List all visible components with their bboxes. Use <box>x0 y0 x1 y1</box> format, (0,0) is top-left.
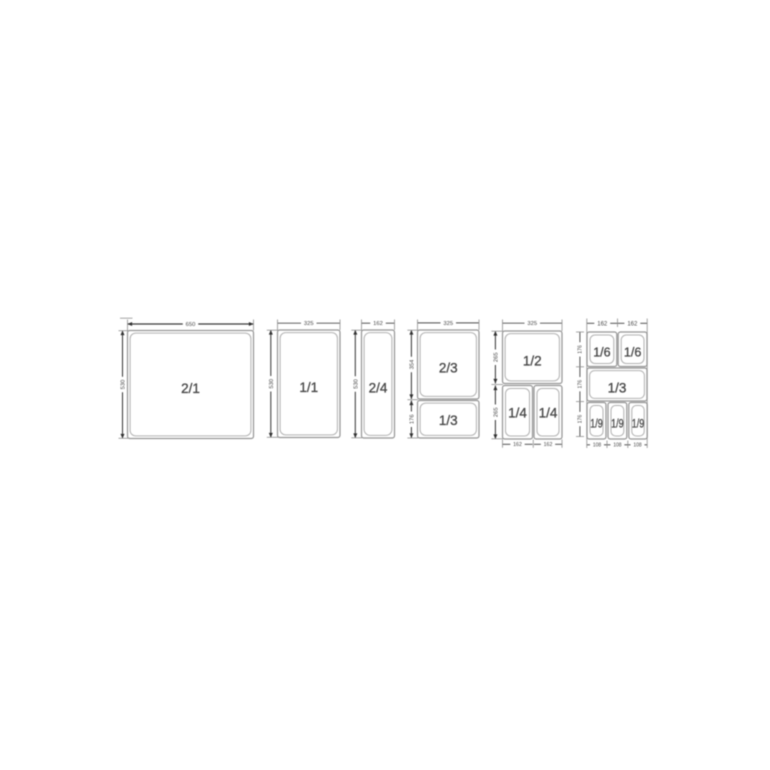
svg-text:1/9: 1/9 <box>611 418 624 430</box>
svg-text:162: 162 <box>597 321 608 327</box>
svg-text:1/6: 1/6 <box>593 345 610 359</box>
svg-text:162: 162 <box>627 321 638 327</box>
svg-text:176: 176 <box>578 345 584 354</box>
svg-text:176: 176 <box>409 414 415 424</box>
svg-text:1/9: 1/9 <box>632 418 645 430</box>
svg-text:354: 354 <box>409 359 415 369</box>
svg-text:325: 325 <box>443 321 453 327</box>
svg-text:2/1: 2/1 <box>181 381 200 396</box>
svg-text:2/4: 2/4 <box>369 380 388 395</box>
svg-text:1/2: 1/2 <box>523 354 542 369</box>
svg-text:530: 530 <box>121 380 127 390</box>
svg-text:1/4: 1/4 <box>539 406 558 421</box>
svg-text:1/9: 1/9 <box>590 418 603 430</box>
svg-text:530: 530 <box>269 379 275 389</box>
svg-text:1/4: 1/4 <box>508 406 527 421</box>
svg-text:108: 108 <box>593 443 602 449</box>
svg-text:325: 325 <box>527 321 537 327</box>
svg-text:265: 265 <box>493 352 499 362</box>
svg-text:265: 265 <box>493 407 499 417</box>
svg-text:1/1: 1/1 <box>299 380 318 395</box>
svg-text:2/3: 2/3 <box>439 360 458 375</box>
svg-text:650: 650 <box>186 322 196 328</box>
svg-text:176: 176 <box>578 415 584 424</box>
svg-text:1/6: 1/6 <box>624 345 641 359</box>
svg-text:176: 176 <box>578 380 584 389</box>
svg-text:108: 108 <box>633 443 642 449</box>
svg-text:108: 108 <box>613 443 622 449</box>
svg-text:325: 325 <box>304 321 314 327</box>
svg-text:530: 530 <box>353 379 359 389</box>
svg-text:1/3: 1/3 <box>608 380 627 395</box>
svg-text:1/3: 1/3 <box>439 413 458 428</box>
svg-text:162: 162 <box>373 321 383 327</box>
svg-text:162: 162 <box>544 442 553 448</box>
svg-text:162: 162 <box>513 442 522 448</box>
